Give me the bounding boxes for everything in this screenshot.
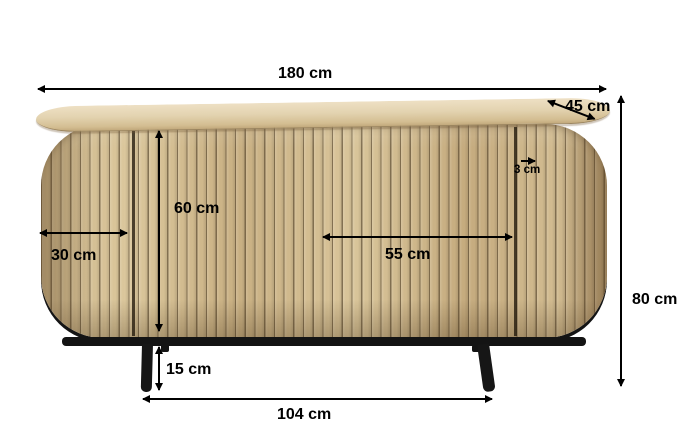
dim-label-slat-width: 3 cm: [514, 164, 540, 177]
dim-arrow-total-height: [620, 96, 622, 386]
door-gap-left: [132, 127, 135, 336]
sideboard-leg-left: [141, 344, 153, 392]
dim-arrow-leg-span: [143, 398, 492, 400]
dim-arrow-leg-height: [158, 347, 160, 390]
sideboard-base-frame: [62, 337, 586, 346]
dim-label-door-height: 60 cm: [174, 200, 219, 218]
door-gap-right: [514, 127, 517, 336]
dim-arrow-slat-width: [521, 160, 535, 162]
dim-label-middle-section-width: 55 cm: [385, 246, 430, 264]
dim-arrow-middle-section-width: [323, 236, 512, 238]
dim-label-total-width: 180 cm: [278, 65, 332, 83]
dim-label-leg-span: 104 cm: [277, 406, 331, 424]
dim-label-total-height: 80 cm: [632, 291, 677, 309]
dim-arrow-door-height: [158, 131, 160, 331]
dim-arrow-total-width: [38, 88, 606, 90]
dim-label-depth: 45 cm: [565, 98, 610, 116]
dim-label-side-door-width: 30 cm: [51, 247, 96, 265]
sideboard-leg-right: [477, 343, 496, 392]
dim-label-leg-height: 15 cm: [166, 361, 211, 379]
dim-arrow-side-door-width: [40, 232, 127, 234]
product-dimension-diagram: 180 cm 45 cm 80 cm 60 cm 30 cm 55 cm 3 c…: [0, 0, 700, 430]
